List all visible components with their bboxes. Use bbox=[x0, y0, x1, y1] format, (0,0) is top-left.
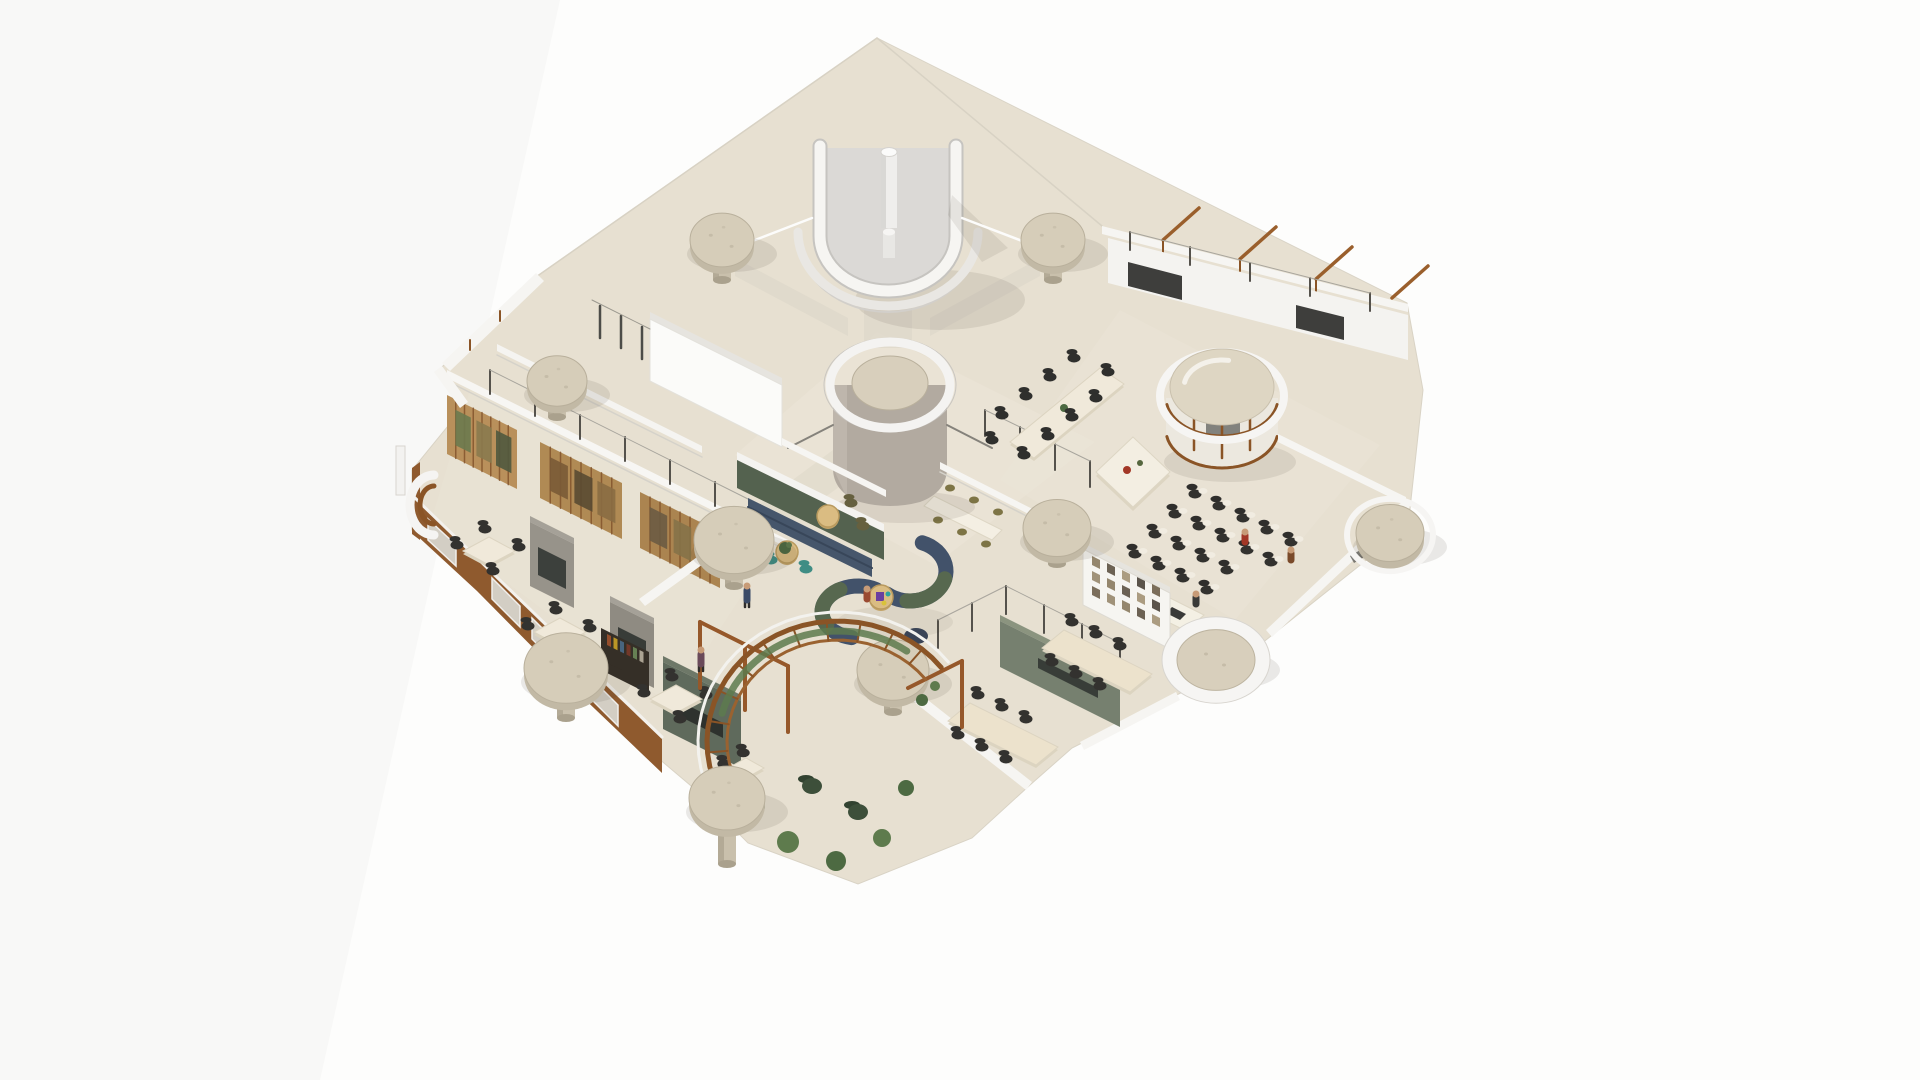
mushroom-column-south-edge-speckle bbox=[712, 791, 716, 794]
lecture-tablet-chairs-back bbox=[1283, 532, 1294, 538]
mushroom-column-south-edge-stem-base bbox=[718, 860, 736, 868]
lecture-tablet-chairs-tablet bbox=[1187, 572, 1196, 578]
bookshelf-books-item bbox=[640, 650, 644, 663]
west-slab-wall bbox=[396, 446, 405, 495]
mushroom-column-south-edge-speckle bbox=[736, 804, 740, 807]
mushroom-column-south-edge-speckle bbox=[727, 782, 731, 785]
mushroom-column-south-edge-cap-top bbox=[689, 766, 765, 830]
lecture-tablet-chairs-back bbox=[1215, 528, 1226, 534]
mushroom-column-south-center-speckle bbox=[902, 676, 906, 679]
mushroom-column-west-upper-cap-top bbox=[527, 356, 587, 406]
conservatory-plant-4 bbox=[873, 829, 891, 847]
lecture-tablet-chairs-tablet bbox=[1203, 520, 1212, 526]
mushroom-column-top-right-speckle bbox=[1061, 245, 1065, 248]
conference-chairs bbox=[996, 411, 1009, 420]
lecture-tablet-chairs-back bbox=[1235, 508, 1246, 514]
conference-chairs bbox=[1068, 354, 1081, 363]
elevator-cap-disc bbox=[852, 356, 928, 410]
mushroom-column-top-left-cap-top bbox=[690, 213, 754, 267]
conference-chairs bbox=[1066, 413, 1079, 422]
lecture-tablet-chairs-back bbox=[1175, 568, 1186, 574]
potted-plant-1 bbox=[916, 694, 928, 706]
seminar-table-2-chairs bbox=[972, 691, 985, 700]
classroom-table-4-chair bbox=[737, 748, 750, 757]
classroom-table-1-chair bbox=[487, 567, 500, 576]
person-walking-atrium-head bbox=[698, 647, 705, 654]
lecture-tablet-chairs-tablet bbox=[1207, 552, 1216, 558]
lecture-tablet-chairs-back bbox=[1147, 524, 1158, 530]
conference-chairs bbox=[1018, 451, 1031, 460]
mushroom-column-top-left-stem-base bbox=[713, 276, 731, 284]
classroom-table-1-chair bbox=[479, 525, 492, 534]
seminar-table-1-chairs bbox=[1066, 618, 1079, 627]
lecture-tablet-chairs-tablet bbox=[1271, 524, 1280, 530]
mushroom-column-west-lower-speckle bbox=[549, 660, 553, 663]
floor-plan-svg bbox=[0, 0, 1920, 1080]
bookshelf-books-item bbox=[627, 644, 631, 657]
bookshelf-books-item bbox=[614, 637, 618, 650]
conservatory-plant-3 bbox=[826, 851, 846, 871]
u-center-cylinder-shade bbox=[881, 152, 886, 228]
lecture-person-red-head bbox=[1242, 529, 1249, 536]
seminar-table-1-chairs bbox=[1094, 682, 1107, 691]
cafe-round-table-1-top bbox=[817, 505, 839, 527]
lecture-tablet-chairs-back bbox=[1127, 544, 1138, 550]
mushroom-column-far-right-speckle bbox=[1376, 526, 1380, 529]
bookshelf-books-item bbox=[607, 634, 611, 647]
lecture-tablet-chairs-tablet bbox=[1183, 540, 1192, 546]
bookshelf-books-item bbox=[633, 647, 637, 660]
lecture-tablet-chairs-tablet bbox=[1163, 560, 1172, 566]
u-center-cylinder-top bbox=[881, 148, 897, 157]
mushroom-column-center-right-cap-top bbox=[1023, 499, 1091, 556]
mushroom-column-center-right-speckle bbox=[1065, 533, 1069, 536]
classroom-table-3-chair bbox=[666, 673, 679, 682]
classroom-table-3-chair bbox=[638, 689, 651, 698]
mushroom-column-center-left-speckle bbox=[744, 547, 748, 550]
lecture-tablet-chairs-tablet bbox=[1295, 536, 1304, 542]
bar-stools bbox=[993, 509, 1003, 516]
classroom-table-1-chair bbox=[513, 543, 526, 552]
lecture-tablet-chairs-tablet bbox=[1227, 532, 1236, 538]
lecture-tablet-chairs-tablet bbox=[1139, 548, 1148, 554]
mushroom-column-far-right-speckle bbox=[1398, 538, 1402, 541]
seminar-table-1-chairs bbox=[1046, 658, 1059, 667]
mushroom-column-south-center-stem-base bbox=[884, 708, 902, 716]
ne-brace-4 bbox=[1392, 266, 1428, 298]
conference-chairs bbox=[1044, 373, 1057, 382]
classroom-table-2-chair bbox=[522, 622, 535, 631]
classroom-table-2-chair bbox=[550, 606, 563, 615]
conference-chairs bbox=[1020, 392, 1033, 401]
potted-plant-2 bbox=[930, 681, 940, 691]
mushroom-column-west-lower-speckle bbox=[566, 650, 570, 653]
bar-stools bbox=[945, 485, 955, 492]
lounge-table-item-yellow bbox=[882, 601, 887, 606]
conservatory-armchair-2 bbox=[848, 804, 868, 820]
mushroom-column-far-right-cap-top bbox=[1356, 504, 1424, 561]
mushroom-column-center-left-speckle bbox=[718, 533, 722, 536]
lecture-tablet-chairs-back bbox=[1263, 552, 1274, 558]
mushroom-column-west-lower-cap-top bbox=[524, 633, 608, 704]
floor-plan-render bbox=[0, 0, 1920, 1080]
seminar-table-2-chairs bbox=[1020, 715, 1033, 724]
turret-ring-top-inner-disc bbox=[1177, 630, 1255, 691]
lecture-tablet-chairs-back bbox=[1167, 504, 1178, 510]
seminar-table-2-chairs bbox=[1000, 755, 1013, 764]
conservatory-plant-5 bbox=[898, 780, 914, 796]
mushroom-column-center-left-stem-base bbox=[725, 582, 743, 590]
lecture-tablet-chairs-back bbox=[1187, 484, 1198, 490]
lecture-tablet-chairs-tablet bbox=[1231, 564, 1240, 570]
lecture-tablet-chairs-tablet bbox=[1199, 488, 1208, 494]
teacher-person-head bbox=[1193, 591, 1200, 598]
square-table-plant bbox=[1137, 460, 1143, 466]
seminar-table-2-chairs bbox=[976, 743, 989, 752]
turret-ring-top-speckle bbox=[1222, 664, 1226, 667]
mushroom-column-west-upper-speckle bbox=[564, 386, 568, 389]
mushroom-column-center-right-speckle bbox=[1043, 521, 1047, 524]
cafe-chairs-dark bbox=[857, 522, 870, 531]
bookshelf-books-item bbox=[620, 640, 624, 653]
mushroom-column-top-left-speckle bbox=[722, 226, 726, 229]
mushroom-column-center-left-cap-top bbox=[694, 506, 774, 573]
lecture-tablet-chairs-tablet bbox=[1275, 556, 1284, 562]
mushroom-column-west-upper-stem-base bbox=[548, 413, 566, 421]
lecture-tablet-chairs-back bbox=[1199, 580, 1210, 586]
lounge-person-sitting-head bbox=[864, 586, 871, 593]
u-stub-cylinder bbox=[883, 232, 895, 258]
seminar-table-1-chairs bbox=[1114, 642, 1127, 651]
mushroom-column-top-left-speckle bbox=[730, 245, 734, 248]
lecture-tablet-chairs-tablet bbox=[1179, 508, 1188, 514]
classroom-table-1-chair bbox=[451, 541, 464, 550]
mushroom-column-south-center-speckle bbox=[878, 663, 882, 666]
lecture-tablet-chairs-back bbox=[1171, 536, 1182, 542]
conference-chairs bbox=[1102, 368, 1115, 377]
conservatory-armchair-1 bbox=[802, 778, 822, 794]
lecture-person-brown-head bbox=[1288, 547, 1295, 554]
mushroom-column-top-right-stem-base bbox=[1044, 276, 1062, 284]
conference-chairs bbox=[1090, 394, 1103, 403]
lounge-table-item-purple bbox=[876, 592, 884, 601]
square-table-bowl bbox=[1123, 466, 1131, 474]
turret-ring-top-speckle bbox=[1204, 653, 1208, 656]
mushroom-column-top-right-cap-top bbox=[1021, 213, 1085, 267]
lecture-tablet-chairs-tablet bbox=[1159, 528, 1168, 534]
seminar-table-2-chairs bbox=[996, 703, 1009, 712]
bar-stools bbox=[981, 541, 991, 548]
lecture-tablet-chairs-tablet bbox=[1247, 512, 1256, 518]
cafe-chairs-teal bbox=[800, 565, 813, 574]
mushroom-column-top-right-speckle bbox=[1053, 226, 1057, 229]
person-standing-atrium-head bbox=[744, 583, 751, 590]
cafe-chairs-dark bbox=[845, 499, 858, 508]
lecture-tablet-chairs-back bbox=[1151, 556, 1162, 562]
conference-chairs bbox=[986, 436, 999, 445]
mushroom-column-center-left-speckle bbox=[734, 523, 738, 526]
mushroom-column-west-lower-speckle bbox=[577, 675, 581, 678]
lecture-tablet-chairs-tablet bbox=[1223, 500, 1232, 506]
mushroom-column-west-upper-speckle bbox=[557, 368, 561, 371]
lecture-tablet-chairs-tablet bbox=[1211, 584, 1220, 590]
u-stub-cylinder-top bbox=[883, 229, 895, 236]
conservatory-plant-2 bbox=[777, 831, 799, 853]
bar-stools bbox=[957, 529, 967, 536]
lecture-tablet-chairs-back bbox=[1191, 516, 1202, 522]
mushroom-column-west-upper-speckle bbox=[545, 375, 549, 378]
mushroom-column-far-right-speckle bbox=[1390, 518, 1394, 521]
lecture-tablet-chairs-tablet bbox=[1251, 544, 1260, 550]
seminar-table-1-chairs bbox=[1070, 670, 1083, 679]
mushroom-column-top-left-speckle bbox=[709, 234, 713, 237]
classroom-table-2-chair bbox=[584, 624, 597, 633]
lecture-tablet-chairs-back bbox=[1259, 520, 1270, 526]
lecture-tablet-chairs-back bbox=[1219, 560, 1230, 566]
lounge-table-item-teal bbox=[886, 592, 891, 597]
classroom-table-3-chair bbox=[674, 715, 687, 724]
mushroom-column-top-right-speckle bbox=[1040, 234, 1044, 237]
conference-chairs bbox=[1042, 432, 1055, 441]
mushroom-column-west-lower-stem-base bbox=[557, 714, 575, 722]
lecture-tablet-chairs-back bbox=[1195, 548, 1206, 554]
mushroom-column-center-right-speckle bbox=[1057, 513, 1061, 516]
seminar-table-1-chairs bbox=[1090, 630, 1103, 639]
seminar-table-2-chairs bbox=[952, 731, 965, 740]
lecture-tablet-chairs-back bbox=[1211, 496, 1222, 502]
